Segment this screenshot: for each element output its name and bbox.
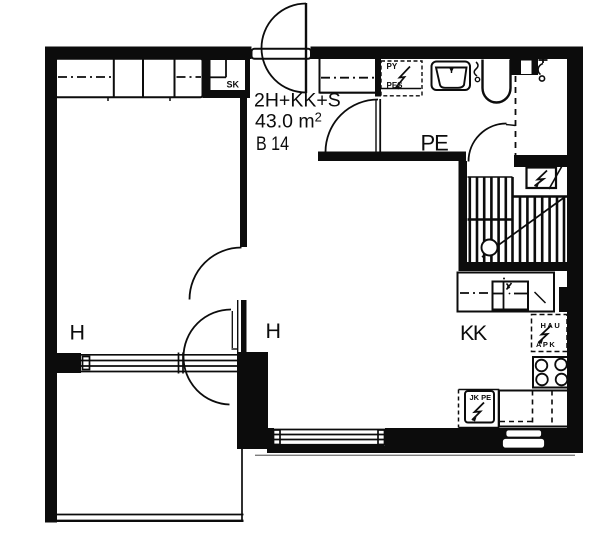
svg-text:KK: KK [460, 321, 488, 345]
svg-text:B 14: B 14 [256, 133, 289, 155]
svg-text:H: H [70, 321, 86, 345]
svg-text:JK PE: JK PE [470, 393, 492, 402]
svg-text:2H+KK+S: 2H+KK+S [254, 90, 341, 112]
svg-text:PY: PY [387, 62, 398, 71]
svg-text:PE: PE [421, 131, 449, 156]
svg-text:SK: SK [227, 80, 240, 90]
svg-text:43.0 m2: 43.0 m2 [255, 110, 322, 133]
svg-text:H: H [266, 319, 282, 343]
